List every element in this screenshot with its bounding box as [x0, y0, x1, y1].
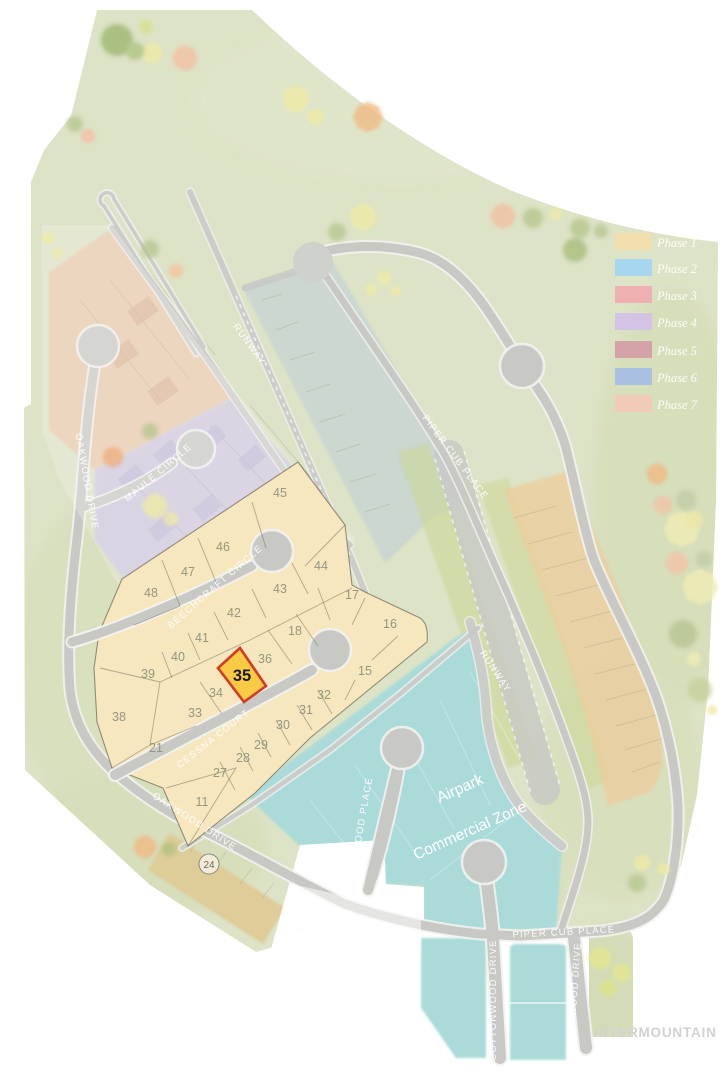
svg-text:31: 31 — [299, 703, 313, 717]
svg-text:24: 24 — [203, 860, 215, 871]
svg-text:Phase 7: Phase 7 — [656, 398, 698, 412]
svg-text:32: 32 — [317, 688, 331, 702]
svg-text:Phase 1: Phase 1 — [656, 236, 697, 250]
svg-text:Phase 2: Phase 2 — [656, 262, 697, 276]
svg-text:17: 17 — [345, 588, 359, 602]
svg-text:44: 44 — [314, 559, 328, 573]
svg-text:48: 48 — [144, 586, 158, 600]
svg-text:21: 21 — [149, 741, 163, 755]
svg-text:36: 36 — [258, 652, 272, 666]
svg-text:29: 29 — [254, 738, 268, 752]
svg-text:Phase 5: Phase 5 — [656, 344, 697, 358]
svg-text:40: 40 — [171, 650, 185, 664]
svg-text:45: 45 — [273, 486, 287, 500]
svg-text:16: 16 — [383, 617, 397, 631]
svg-text:INTERMOUNTAIN: INTERMOUNTAIN — [594, 1025, 717, 1040]
svg-text:18: 18 — [288, 624, 302, 638]
svg-text:15: 15 — [358, 664, 372, 678]
svg-text:Phase 3: Phase 3 — [656, 289, 697, 303]
svg-text:41: 41 — [195, 631, 209, 645]
svg-text:33: 33 — [188, 706, 202, 720]
svg-text:46: 46 — [216, 540, 230, 554]
svg-text:Phase 6: Phase 6 — [656, 371, 698, 385]
svg-text:11: 11 — [196, 795, 209, 809]
svg-text:47: 47 — [181, 565, 195, 579]
svg-text:43: 43 — [273, 582, 287, 596]
svg-text:27: 27 — [213, 766, 227, 780]
svg-text:Phase 4: Phase 4 — [656, 316, 697, 330]
svg-text:28: 28 — [236, 751, 250, 765]
svg-text:COTTONWOOD DRIVE: COTTONWOOD DRIVE — [488, 939, 499, 1060]
svg-text:30: 30 — [276, 718, 290, 732]
svg-text:39: 39 — [141, 667, 155, 681]
svg-text:35: 35 — [233, 667, 251, 685]
svg-text:42: 42 — [227, 606, 241, 620]
svg-text:34: 34 — [209, 686, 223, 700]
svg-text:38: 38 — [112, 710, 126, 724]
